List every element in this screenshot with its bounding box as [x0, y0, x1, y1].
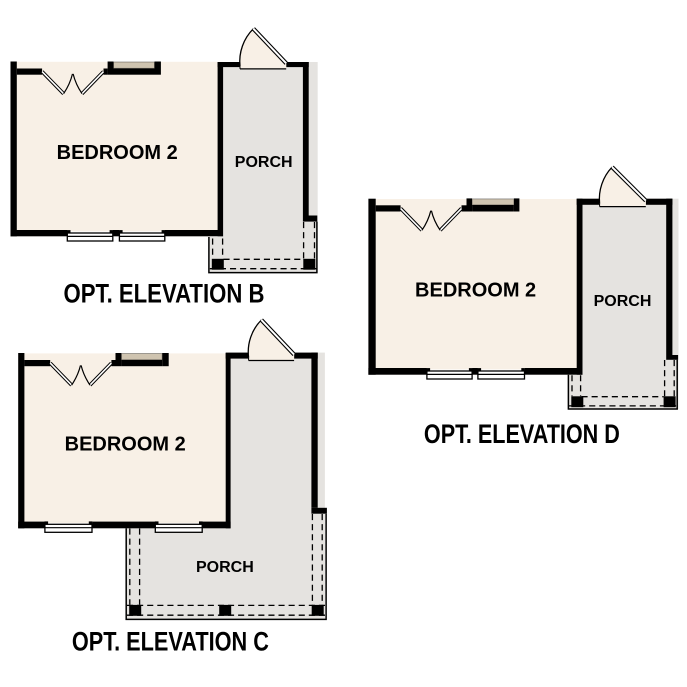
svg-text:BEDROOM 2: BEDROOM 2 [65, 434, 186, 456]
svg-text:PORCH: PORCH [594, 293, 652, 310]
svg-text:BEDROOM 2: BEDROOM 2 [415, 280, 536, 302]
svg-text:BEDROOM 2: BEDROOM 2 [57, 142, 178, 164]
svg-text:PORCH: PORCH [235, 154, 293, 171]
svg-text:PORCH: PORCH [196, 559, 254, 576]
svg-text:OPT. ELEVATION D: OPT. ELEVATION D [424, 419, 620, 449]
svg-text:OPT. ELEVATION B: OPT. ELEVATION B [64, 278, 265, 308]
svg-text:OPT. ELEVATION C: OPT. ELEVATION C [72, 626, 269, 656]
